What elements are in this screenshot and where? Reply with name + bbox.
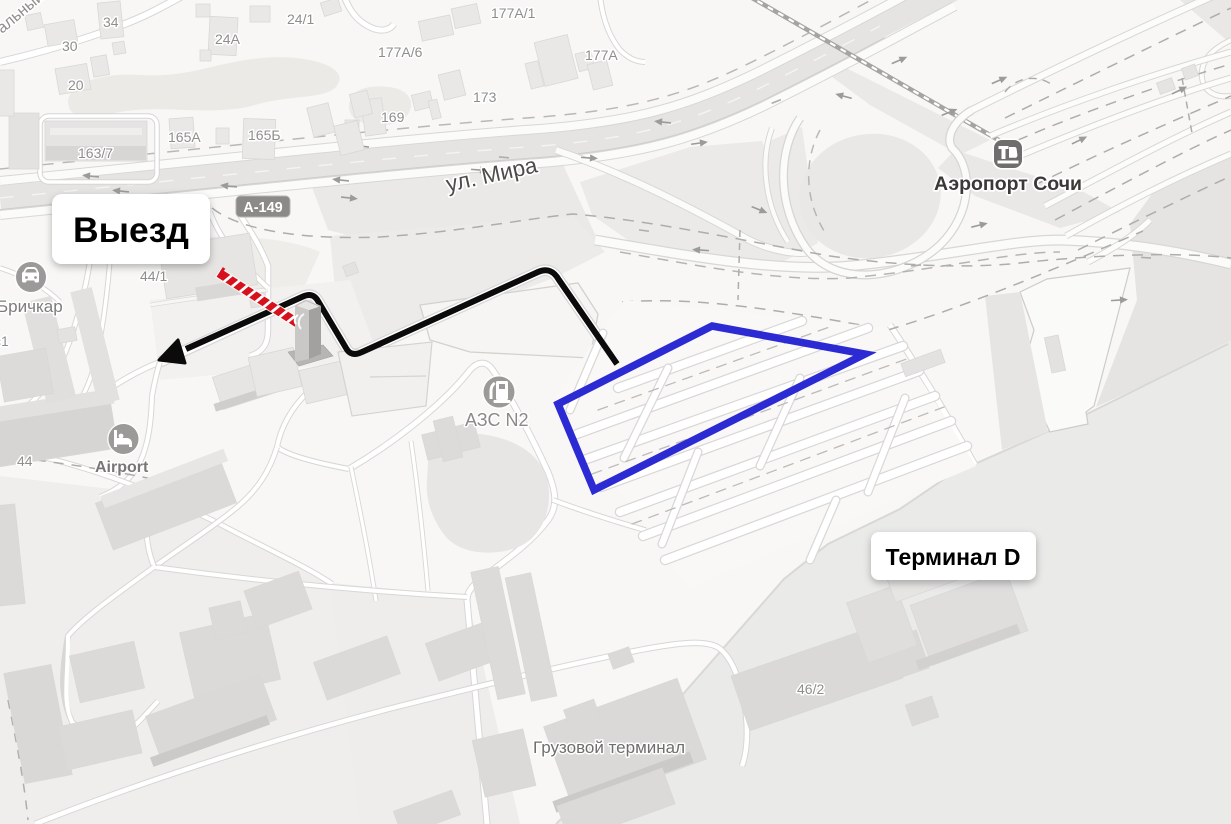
svg-text:А-149: А-149	[243, 200, 283, 216]
svg-text:АЗС N2: АЗС N2	[465, 410, 528, 430]
svg-text:44: 44	[17, 453, 33, 469]
svg-text:30: 30	[62, 38, 78, 54]
svg-text:Терминал D: Терминал D	[886, 544, 1021, 570]
svg-text:20: 20	[68, 77, 84, 93]
svg-text:163/7: 163/7	[78, 145, 113, 161]
svg-text:34: 34	[103, 14, 119, 30]
svg-text:177А/1: 177А/1	[491, 5, 536, 21]
svg-text:177А: 177А	[585, 47, 618, 63]
svg-text:Аэропорт Сочи: Аэропорт Сочи	[934, 173, 1082, 195]
svg-text:Бричкар: Бричкар	[0, 297, 63, 316]
svg-text:24А: 24А	[215, 31, 241, 47]
svg-text:Airport: Airport	[95, 459, 149, 476]
svg-text:173: 173	[473, 89, 497, 105]
svg-text:24/1: 24/1	[287, 11, 314, 27]
svg-text:177А/6: 177А/6	[378, 44, 423, 60]
svg-text:Выезд: Выезд	[73, 210, 189, 250]
svg-text:165А: 165А	[168, 129, 201, 145]
svg-text:46/2: 46/2	[797, 681, 824, 697]
svg-text:с1: с1	[0, 333, 9, 349]
svg-text:Грузовой терминал: Грузовой терминал	[533, 738, 685, 757]
svg-text:165Б: 165Б	[248, 127, 281, 143]
svg-text:169: 169	[381, 109, 405, 125]
svg-text:44/1: 44/1	[140, 268, 167, 284]
